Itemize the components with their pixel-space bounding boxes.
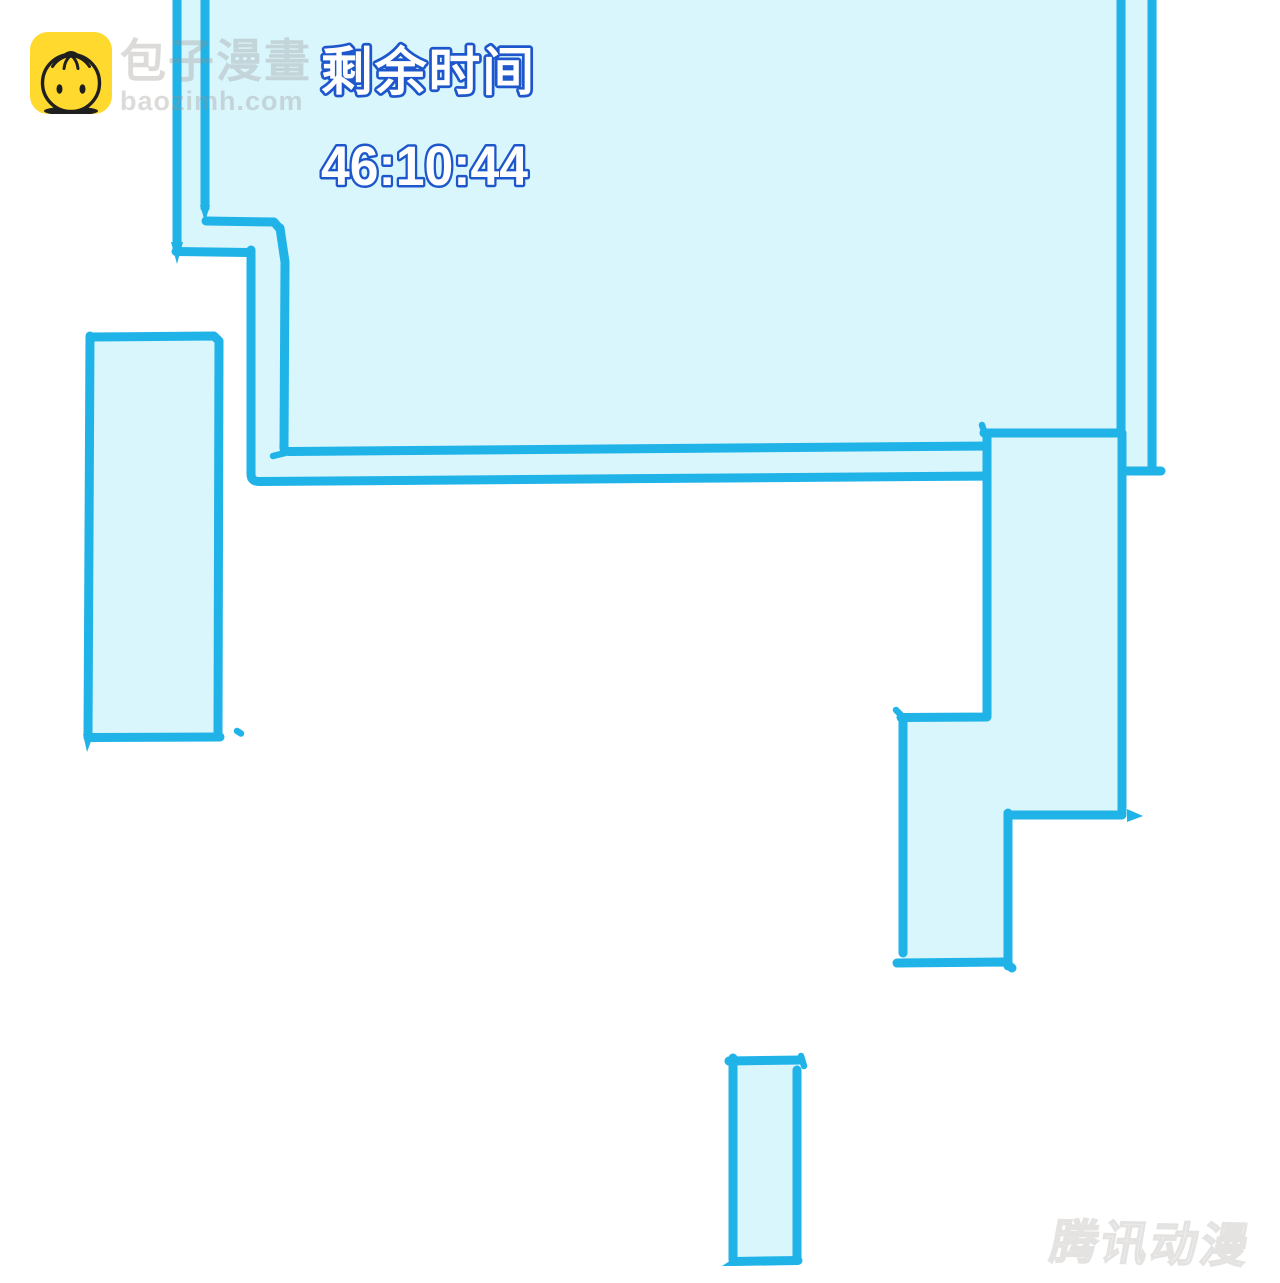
panel-top-fill: [172, 0, 1157, 481]
site-watermark-text: 包子漫畫 baozimh.com: [120, 32, 312, 115]
panel-label: 剩余时间: [321, 44, 536, 102]
panel-left: [83, 336, 241, 752]
site-domain: baozimh.com: [120, 88, 312, 115]
comic-page: 剩余时间 46:10:44: [0, 0, 1280, 1283]
panel-top: 剩余时间 46:10:44: [171, 0, 1161, 482]
panel-left-fill: [88, 336, 220, 738]
publisher-watermark: 腾讯动漫: [1046, 1203, 1258, 1276]
panel-bottom-fill: [733, 1059, 799, 1262]
panel-staircase: [896, 425, 1143, 968]
site-name: 包子漫畫: [120, 38, 312, 84]
site-watermark: 包子漫畫 baozimh.com: [30, 32, 312, 115]
panel-timer: 46:10:44: [321, 134, 528, 197]
panel-bottom: [722, 1056, 804, 1266]
baozi-logo-icon: [30, 32, 112, 114]
comic-panels-art: 剩余时间 46:10:44: [0, 0, 1280, 1283]
